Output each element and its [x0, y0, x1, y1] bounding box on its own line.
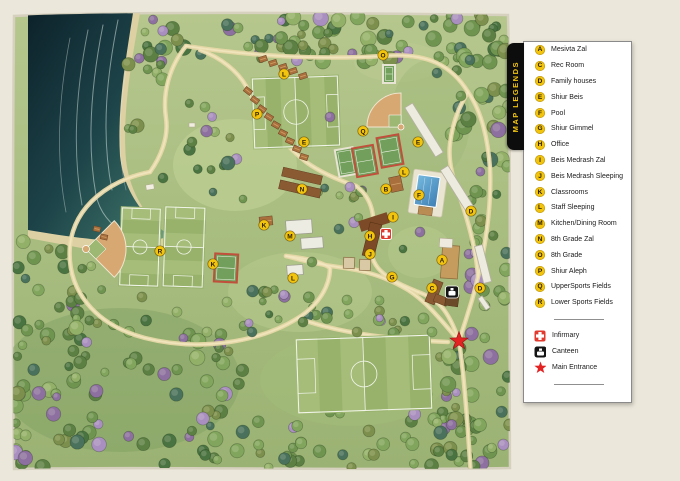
- legend-item-n: N8th Grade Zal: [524, 232, 631, 248]
- legend-item-label: Main Entrance: [552, 364, 597, 371]
- marker-k: K: [259, 220, 269, 230]
- legend-letter-badge: N: [535, 234, 545, 244]
- legend-divider: [554, 384, 604, 385]
- legend-item-label: Staff Sleeping: [551, 204, 594, 211]
- marker-d: D: [466, 206, 476, 216]
- legend-item-label: Shiur Beis: [551, 94, 583, 101]
- svg-text:O: O: [380, 52, 385, 59]
- legend-item-r: RLower Sports Fields: [524, 295, 631, 311]
- lower-basketball-court: [214, 253, 238, 282]
- sport-court-3: [377, 134, 404, 167]
- legend-item-e: EShiur Beis: [524, 89, 631, 105]
- marker-h: H: [365, 231, 375, 241]
- legend-item-main-entrance: Main Entrance: [524, 360, 631, 376]
- legend-banner: MAP LEGENDS: [507, 43, 524, 150]
- svg-text:L: L: [402, 169, 406, 176]
- svg-text:D: D: [478, 285, 483, 292]
- marker-j: J: [365, 249, 375, 259]
- legend-item-label: 8th Grade Zal: [551, 236, 594, 243]
- legend-letter-badge: M: [535, 219, 545, 229]
- legend-item-label: Lower Sports Fields: [551, 299, 613, 306]
- legend-item-i: IBeis Medrash Zal: [524, 153, 631, 169]
- tennis-court: [383, 65, 395, 83]
- svg-text:N: N: [300, 186, 305, 193]
- lower-soccer-field-2: [162, 205, 207, 288]
- legend-letter-badge: J: [535, 171, 545, 181]
- marker-l: L: [279, 69, 289, 79]
- legend-item-infirmary: Infirmary: [524, 328, 631, 344]
- legend-letter-badge: C: [535, 61, 545, 71]
- legend-item-label: Infirmary: [552, 332, 579, 339]
- infirmary-marker: [381, 229, 392, 240]
- svg-text:B: B: [384, 186, 389, 193]
- svg-text:C: C: [430, 285, 435, 292]
- entrance-star: [534, 362, 546, 374]
- marker-f: F: [414, 190, 424, 200]
- legend-item-g: GShiur Gimmel: [524, 121, 631, 137]
- canteen-marker: [446, 286, 459, 298]
- legend-divider: [554, 319, 604, 320]
- marker-o: O: [378, 50, 388, 60]
- legend-item-canteen: Canteen: [524, 344, 631, 360]
- legend-letter-badge: F: [535, 108, 545, 118]
- marker-m: M: [285, 231, 295, 241]
- legend-letter-badge: R: [535, 298, 545, 308]
- legend-item-label: Beis Medrash Zal: [551, 157, 605, 164]
- canteen: [534, 346, 546, 358]
- marker-n: N: [297, 184, 307, 194]
- marker-q: Q: [358, 126, 368, 136]
- legend-letter-badge: D: [535, 76, 545, 86]
- svg-text:A: A: [440, 257, 445, 264]
- legend-item-f: FPool: [524, 105, 631, 121]
- svg-text:L: L: [282, 71, 286, 78]
- marker-e: E: [299, 137, 309, 147]
- legend-item-q: QUpperSports Fields: [524, 279, 631, 295]
- mesivta-annex: [439, 238, 453, 248]
- legend-item-label: UpperSports Fields: [551, 283, 611, 290]
- legend-item-m: MKitchen/Dining Room: [524, 216, 631, 232]
- legend-item-label: Canteen: [552, 348, 578, 355]
- marker-d: D: [475, 283, 485, 293]
- legend-item-l: LStaff Sleeping: [524, 200, 631, 216]
- svg-text:L: L: [291, 275, 295, 282]
- svg-text:R: R: [158, 248, 163, 255]
- legend-item-h: HOffice: [524, 137, 631, 153]
- kitchen-annex: [301, 237, 324, 250]
- legend-item-label: Shiur Aleph: [551, 268, 587, 275]
- legend-banner-label: MAP LEGENDS: [511, 61, 520, 132]
- legend-item-label: Classrooms: [551, 189, 588, 196]
- legend-letter-badge: O: [535, 250, 545, 260]
- bench: [189, 123, 195, 127]
- legend-item-o: O8th Grade: [524, 247, 631, 263]
- legend-item-d: DFamily houses: [524, 74, 631, 90]
- svg-text:G: G: [389, 274, 394, 281]
- legend-letter-badge: I: [535, 155, 545, 165]
- marker-g: G: [387, 272, 397, 282]
- svg-text:K: K: [211, 261, 216, 268]
- legend-item-j: JBeis Medrash Sleeping: [524, 168, 631, 184]
- legend-letter-badge: P: [535, 266, 545, 276]
- legend-item-label: Rec Room: [551, 62, 584, 69]
- shiur-gimmel-house-1: [343, 257, 355, 269]
- marker-k: K: [208, 259, 218, 269]
- legend-item-a: AMesivta Zal: [524, 42, 631, 58]
- shiur-gimmel-house-2: [359, 259, 371, 271]
- legend-letter-badge: A: [535, 45, 545, 55]
- marker-l: L: [288, 273, 298, 283]
- svg-text:I: I: [392, 214, 394, 221]
- legend-item-label: 8th Grade: [551, 252, 582, 259]
- infirmary-cross: [534, 330, 546, 342]
- legend-item-k: KClassrooms: [524, 184, 631, 200]
- legend-item-label: Shiur Gimmel: [551, 125, 593, 132]
- marker-c: C: [427, 283, 437, 293]
- legend-letter-badge: G: [535, 124, 545, 134]
- svg-text:M: M: [287, 233, 292, 240]
- legend-item-p: PShiur Aleph: [524, 263, 631, 279]
- camp-map-poster: OLPQEELBNFDIKHMRJAKGLCD MAP LEGENDS AMes…: [0, 0, 680, 481]
- sport-court-2: [352, 145, 378, 177]
- legend-item-label: Office: [551, 141, 569, 148]
- legend-panel: MAP LEGENDS AMesivta ZalCRec RoomDFamily…: [523, 41, 632, 403]
- marker-a: A: [437, 255, 447, 265]
- marker-r: R: [155, 246, 165, 256]
- legend-item-label: Beis Medrash Sleeping: [551, 173, 623, 180]
- svg-text:E: E: [416, 139, 421, 146]
- legend-rows: AMesivta ZalCRec RoomDFamily housesEShiu…: [524, 42, 631, 385]
- svg-text:K: K: [262, 222, 267, 229]
- marker-l: L: [399, 167, 409, 177]
- marker-e: E: [413, 137, 423, 147]
- legend-letter-badge: Q: [535, 282, 545, 292]
- marker-p: P: [252, 109, 262, 119]
- legend-item-label: Family houses: [551, 78, 596, 85]
- svg-text:J: J: [368, 251, 372, 258]
- svg-text:E: E: [302, 139, 307, 146]
- legend-item-c: CRec Room: [524, 58, 631, 74]
- dock: [146, 184, 155, 190]
- marker-b: B: [381, 184, 391, 194]
- legend-item-label: Pool: [551, 110, 565, 117]
- bottom-soccer-field: [295, 334, 434, 415]
- svg-text:P: P: [255, 111, 260, 118]
- svg-text:H: H: [368, 233, 373, 240]
- legend-letter-badge: K: [535, 187, 545, 197]
- svg-text:D: D: [469, 208, 474, 215]
- legend-item-label: Kitchen/Dining Room: [551, 220, 617, 227]
- legend-letter-badge: H: [535, 140, 545, 150]
- legend-letter-badge: L: [535, 203, 545, 213]
- legend-letter-badge: E: [535, 92, 545, 102]
- svg-text:F: F: [417, 192, 421, 199]
- legend-item-label: Mesivta Zal: [551, 46, 587, 53]
- marker-i: I: [388, 212, 398, 222]
- svg-text:Q: Q: [360, 128, 365, 135]
